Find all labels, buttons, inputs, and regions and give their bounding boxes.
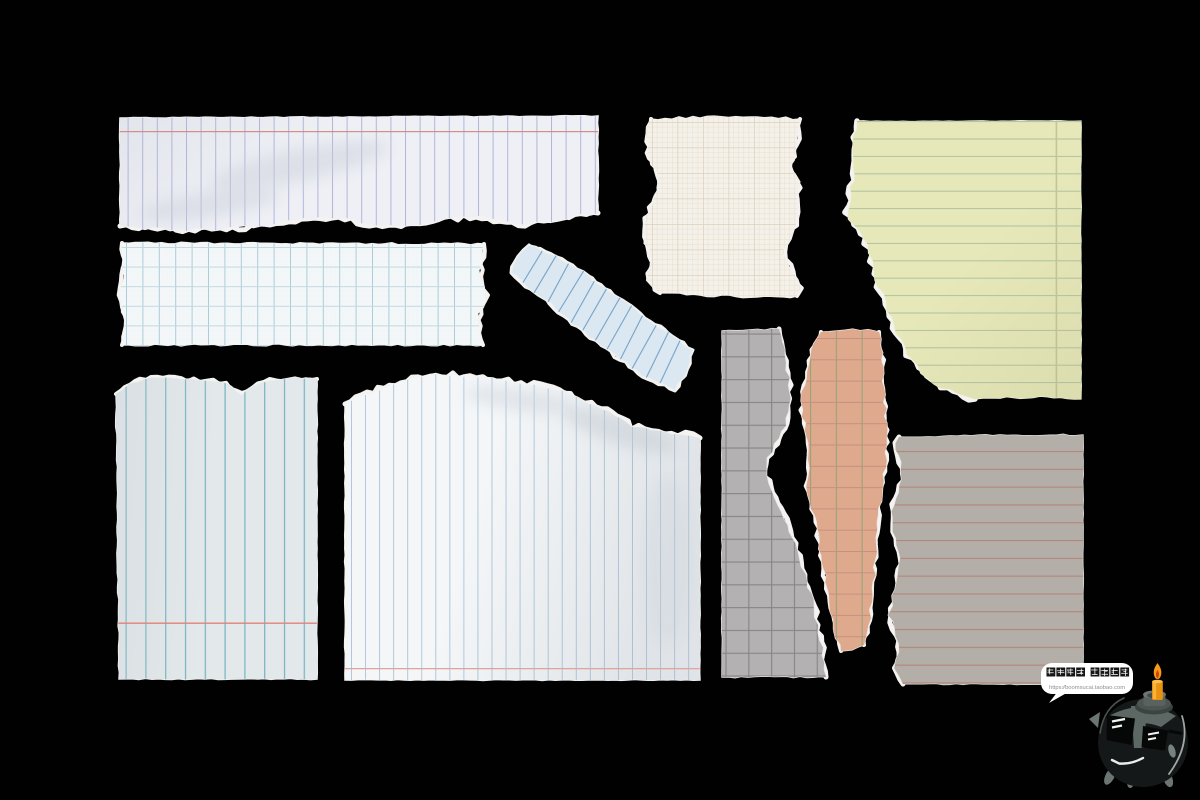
svg-text:https:∕∕boomsucai.taobao.com: https:∕∕boomsucai.taobao.com	[1049, 685, 1125, 691]
